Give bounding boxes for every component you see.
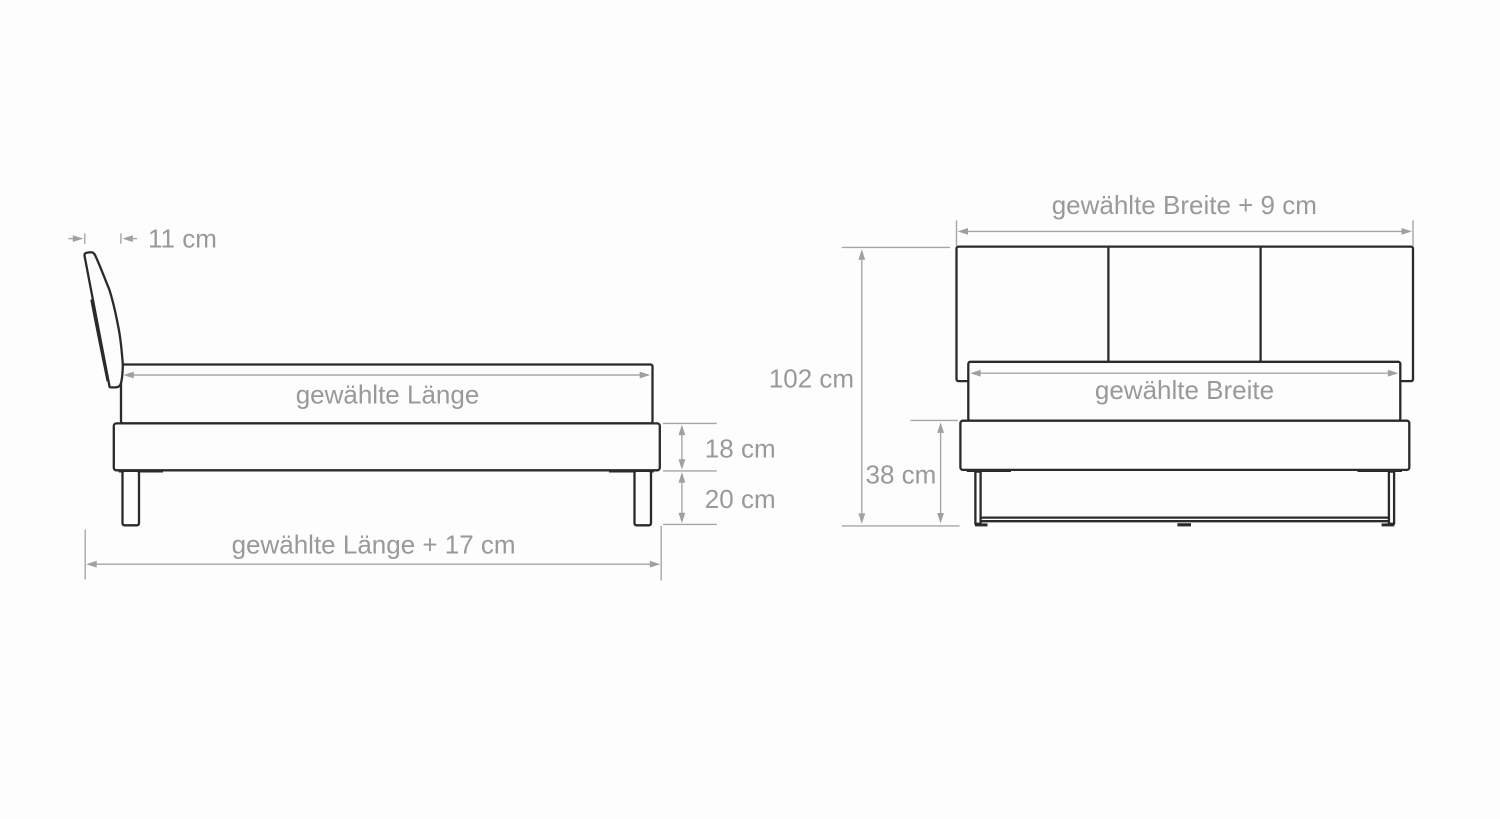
- svg-text:gewählte Länge + 17 cm: gewählte Länge + 17 cm: [232, 530, 516, 560]
- svg-text:gewählte Länge: gewählte Länge: [296, 379, 480, 409]
- svg-text:11 cm: 11 cm: [148, 224, 217, 254]
- svg-text:102 cm: 102 cm: [769, 364, 854, 394]
- svg-text:38 cm: 38 cm: [865, 460, 936, 490]
- svg-text:gewählte Breite + 9 cm: gewählte Breite + 9 cm: [1052, 190, 1317, 220]
- svg-text:gewählte Breite: gewählte Breite: [1095, 375, 1274, 405]
- svg-text:18 cm: 18 cm: [705, 433, 776, 463]
- svg-text:20 cm: 20 cm: [705, 484, 776, 514]
